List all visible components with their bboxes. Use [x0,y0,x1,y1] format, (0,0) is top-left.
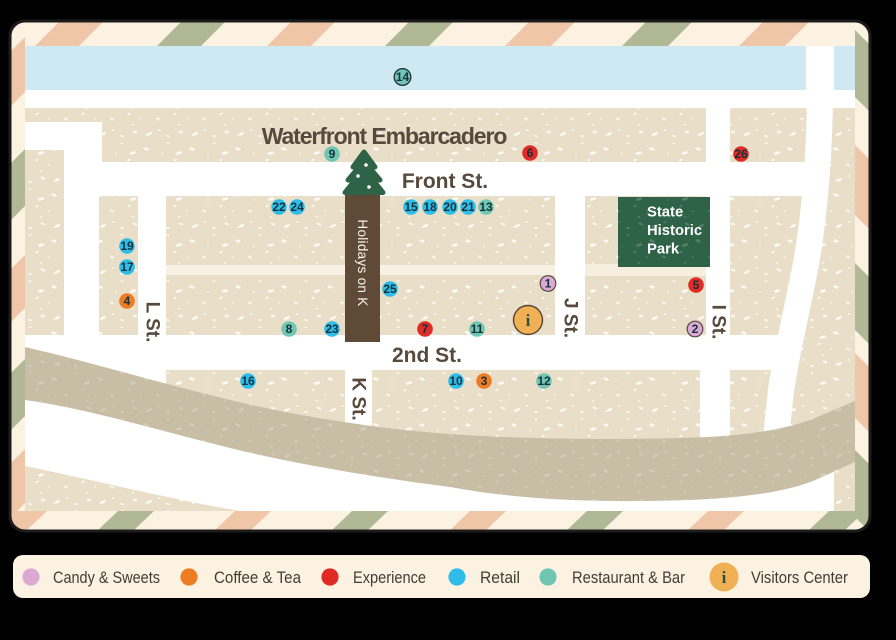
svg-text:25: 25 [383,282,397,296]
svg-text:18: 18 [423,200,437,214]
svg-text:12: 12 [537,374,551,388]
svg-text:22: 22 [272,200,286,214]
svg-text:11: 11 [471,322,484,336]
svg-text:24: 24 [290,200,304,214]
svg-text:2nd St.: 2nd St. [392,344,462,367]
svg-text:J St.: J St. [560,298,581,338]
svg-text:Coffee & Tea: Coffee & Tea [214,568,301,587]
svg-text:Holidays on K: Holidays on K [355,219,370,306]
svg-text:20: 20 [443,200,457,214]
svg-text:5: 5 [693,278,700,292]
svg-text:4: 4 [124,294,131,308]
svg-text:6: 6 [527,146,534,160]
svg-text:Restaurant & Bar: Restaurant & Bar [572,568,685,587]
svg-text:Retail: Retail [480,568,520,587]
svg-text:Waterfront Embarcadero: Waterfront Embarcadero [262,123,508,149]
svg-text:I St.: I St. [708,305,729,340]
svg-text:19: 19 [120,239,134,253]
svg-text:State: State [647,205,683,221]
svg-text:Experience: Experience [353,568,426,587]
svg-text:10: 10 [449,374,463,388]
svg-text:1: 1 [545,277,552,291]
svg-text:Visitors Center: Visitors Center [751,568,848,587]
svg-text:15: 15 [404,200,418,214]
svg-text:14: 14 [396,70,410,84]
svg-text:8: 8 [286,322,293,336]
svg-text:23: 23 [325,322,339,336]
svg-text:13: 13 [479,200,493,214]
svg-text:L St.: L St. [142,302,163,343]
svg-text:K St.: K St. [348,377,369,420]
svg-text:Park: Park [647,242,680,258]
svg-text:7: 7 [422,322,429,336]
svg-text:16: 16 [241,374,255,388]
svg-text:17: 17 [120,260,134,274]
svg-text:2: 2 [692,322,699,336]
svg-text:9: 9 [329,147,336,161]
svg-text:i: i [526,311,531,330]
svg-text:21: 21 [461,200,475,214]
svg-text:Candy & Sweets: Candy & Sweets [53,568,160,587]
svg-text:26: 26 [734,147,748,161]
svg-text:Historic: Historic [647,223,702,239]
svg-text:Front St.: Front St. [402,170,488,193]
svg-text:i: i [722,568,727,587]
svg-text:3: 3 [481,374,488,388]
